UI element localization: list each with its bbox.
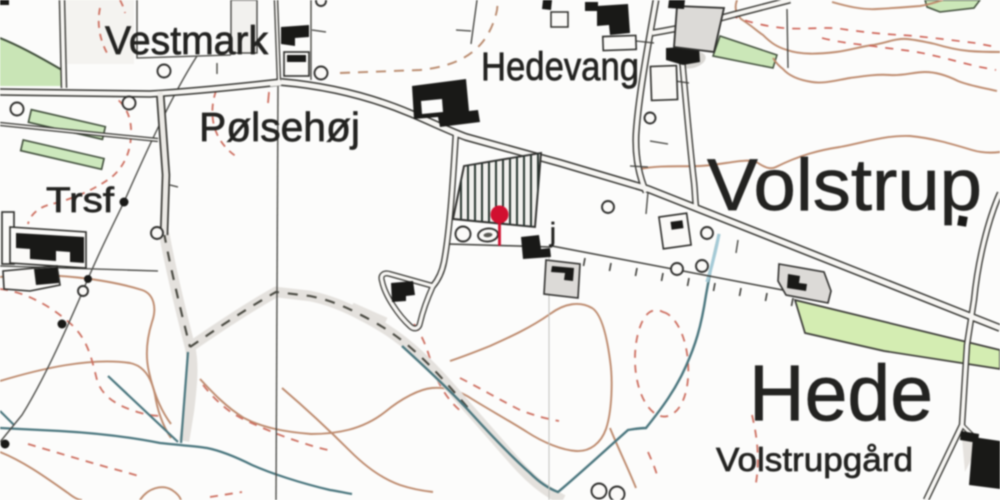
svg-text:j: j [549, 217, 556, 247]
svg-text:Hede: Hede [749, 348, 933, 437]
svg-text:Vestmark: Vestmark [105, 19, 269, 63]
svg-text:Volstrupgård: Volstrupgård [716, 441, 913, 478]
svg-text:Pølsehøj: Pølsehøj [199, 104, 360, 150]
svg-text:Trsf: Trsf [46, 181, 114, 220]
svg-text:Hedevang: Hedevang [481, 45, 639, 89]
svg-text:Volstrup: Volstrup [707, 145, 982, 226]
